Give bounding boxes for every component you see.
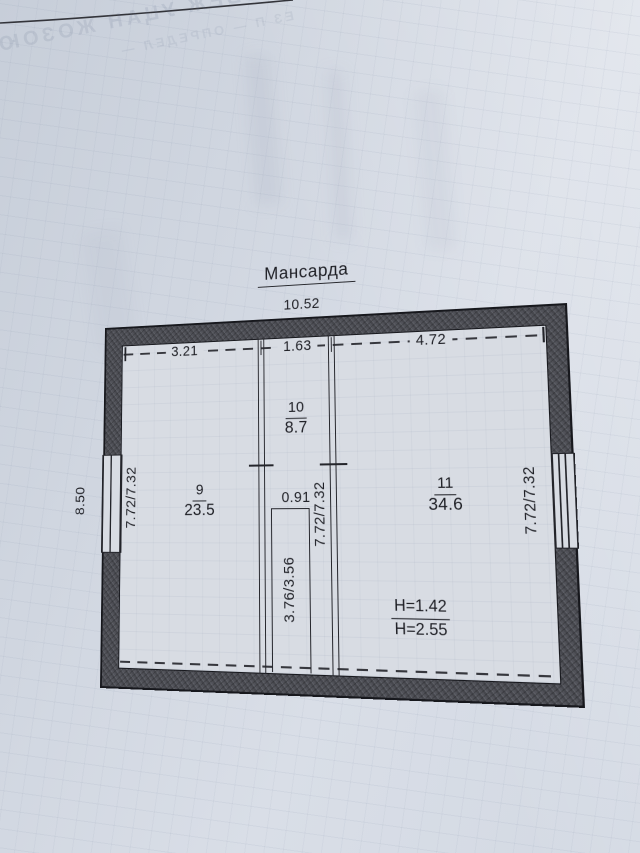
dim-segment-left: 3.21 [166,343,204,360]
room-10-number: 10 [285,400,307,419]
height-lower: Н=2.55 [394,619,447,640]
room-10-label: 10 8.7 [285,399,308,438]
room-9-number: 9 [193,483,206,502]
window-left-wall [101,455,122,553]
floorplan-drawing: Мансарда 10.52 3.21 1.63 4.72 8.50 7.72/… [100,303,585,708]
dim-segment-right: 4.72 [410,331,453,349]
room-9-area: 23.5 [184,501,215,519]
dim-outer-height: 8.50 [74,487,88,516]
room-11-number: 11 [434,475,457,495]
dim-segment-mid: 1.63 [277,338,317,355]
dim-overall-width: 10.52 [283,296,319,313]
dim-tick [124,347,126,361]
scanned-floorplan-page: Х ОСОБЕЖ УЦАН ЖОЗОЮ ЕЗ П — ОПРЕДЕЛ — Ман… [0,0,640,853]
room-11-label: 11 34.6 [428,474,464,515]
dim-left-height: 7.72/7.32 [124,467,139,529]
height-upper: Н=1.42 [391,597,450,620]
room-9-label: 9 23.5 [184,482,215,520]
room-10-area: 8.7 [285,418,308,436]
room-11-area: 34.6 [428,495,463,514]
dim-stair-depth: 3.76/3.56 [282,557,298,623]
window-right-wall [550,453,579,549]
height-note: Н=1.42 Н=2.55 [391,596,451,641]
dim-right-height: 7.72/7.32 [521,466,541,535]
page-edge-curve [0,0,640,42]
dim-center-height: 7.72/7.32 [312,481,329,546]
dim-opening-width: 0.91 [281,490,310,506]
